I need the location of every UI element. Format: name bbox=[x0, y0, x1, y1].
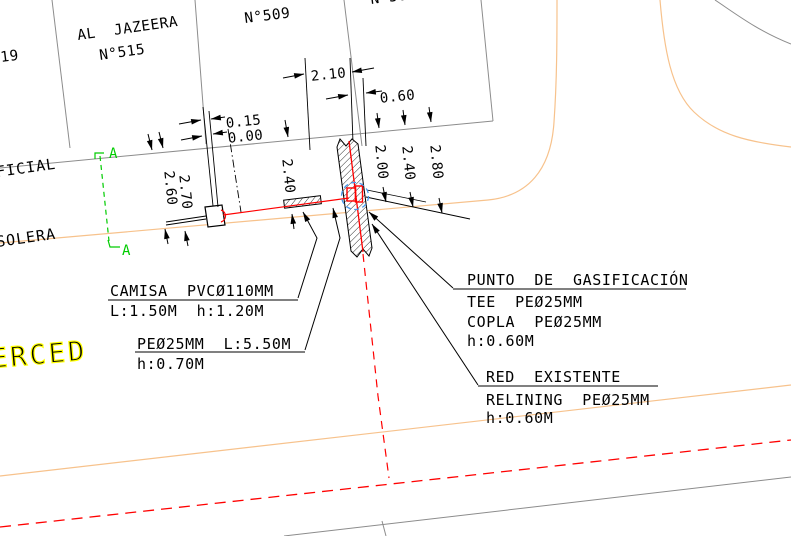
leader-punto bbox=[369, 212, 453, 288]
solera-label: SOLERA bbox=[0, 225, 57, 251]
lot-line-south-tick bbox=[382, 521, 386, 536]
solera-corner-curve bbox=[660, 0, 791, 147]
pipe-casing-line bbox=[166, 219, 206, 225]
dim-2-40-right: 2.40 bbox=[398, 145, 418, 181]
lot-line bbox=[481, 0, 493, 121]
note-punto-l2: COPLA PEØ25MM bbox=[467, 313, 602, 331]
note-camisa-title: CAMISA PVCØ110MM bbox=[110, 282, 274, 300]
dim-2-40-left: 2.40 bbox=[278, 158, 298, 194]
leader-camisa bbox=[298, 212, 317, 298]
dim-0-60: 0.60 bbox=[379, 87, 416, 107]
lot-label-al-jazeera: AL JAZEERA bbox=[76, 14, 179, 44]
corner-boundary-curve bbox=[715, 0, 791, 44]
lot-line bbox=[52, 0, 70, 148]
note-red-l1: RELINING PEØ25MM bbox=[486, 391, 650, 409]
note-camisa-sub: L:1.50M h:1.20M bbox=[110, 302, 264, 320]
street-name-merced: ERCED bbox=[0, 336, 89, 375]
cad-canvas: FICIAL SOLERA ERCED 19 AL JAZEERA N°515 … bbox=[0, 0, 791, 536]
dim-0-00: 0.00 bbox=[227, 127, 264, 147]
section-tick-bottom bbox=[108, 240, 120, 247]
cad-drawing-viewport: FICIAL SOLERA ERCED 19 AL JAZEERA N°515 … bbox=[0, 0, 791, 536]
trench-hatch bbox=[337, 139, 372, 257]
leader-pe-pipe bbox=[305, 208, 340, 350]
leader-lines bbox=[298, 208, 478, 385]
solera-line-south bbox=[0, 385, 791, 476]
leader-red-existente bbox=[372, 224, 478, 385]
dimension-texts: 2.10 0.60 0.15 0.00 2.60 2.70 2.40 2.00 … bbox=[160, 65, 446, 210]
section-cut-line bbox=[100, 156, 109, 241]
lot-label-519: 19 bbox=[0, 48, 20, 66]
lot-boundaries bbox=[0, 0, 791, 536]
note-pe-sub: h:0.70M bbox=[137, 355, 204, 373]
note-punto-title: PUNTO DE GASIFICACIÓN bbox=[467, 270, 689, 289]
lot-label-top-partial: N°50 bbox=[370, 0, 409, 8]
gas-network bbox=[0, 141, 791, 527]
existing-main-dashed-branch bbox=[363, 254, 389, 478]
dim-2-00: 2.00 bbox=[371, 144, 391, 180]
note-punto-l1: TEE PEØ25MM bbox=[467, 293, 583, 311]
annotations: CAMISA PVCØ110MM L:1.50M h:1.20M PEØ25MM… bbox=[110, 270, 689, 427]
lot-label-n509: N°509 bbox=[244, 5, 292, 27]
dim-baseline bbox=[367, 190, 426, 202]
note-red-title: RED EXISTENTE bbox=[486, 368, 621, 386]
dim-2-10: 2.10 bbox=[310, 65, 347, 85]
note-pe-title: PEØ25MM L:5.50M bbox=[137, 335, 291, 353]
section-label-top: A bbox=[109, 146, 118, 162]
existing-main-dashed bbox=[0, 440, 791, 527]
note-punto-l3: h:0.60M bbox=[467, 332, 534, 350]
lot-labels: 19 AL JAZEERA N°515 N°509 N°50 bbox=[0, 0, 408, 66]
valve-box bbox=[205, 205, 225, 227]
lot-line bbox=[344, 0, 362, 146]
pipe-casing-line bbox=[166, 216, 206, 222]
dim-2-70: 2.70 bbox=[175, 174, 195, 210]
section-label-bottom: A bbox=[122, 243, 131, 259]
lot-label-n515: N°515 bbox=[98, 42, 146, 64]
note-red-l2: h:0.60M bbox=[486, 409, 553, 427]
solera-curb-lines bbox=[0, 0, 791, 476]
official-line-label: FICIAL bbox=[0, 155, 57, 181]
official-line-south bbox=[284, 477, 791, 536]
dim-2-80: 2.80 bbox=[426, 144, 446, 180]
